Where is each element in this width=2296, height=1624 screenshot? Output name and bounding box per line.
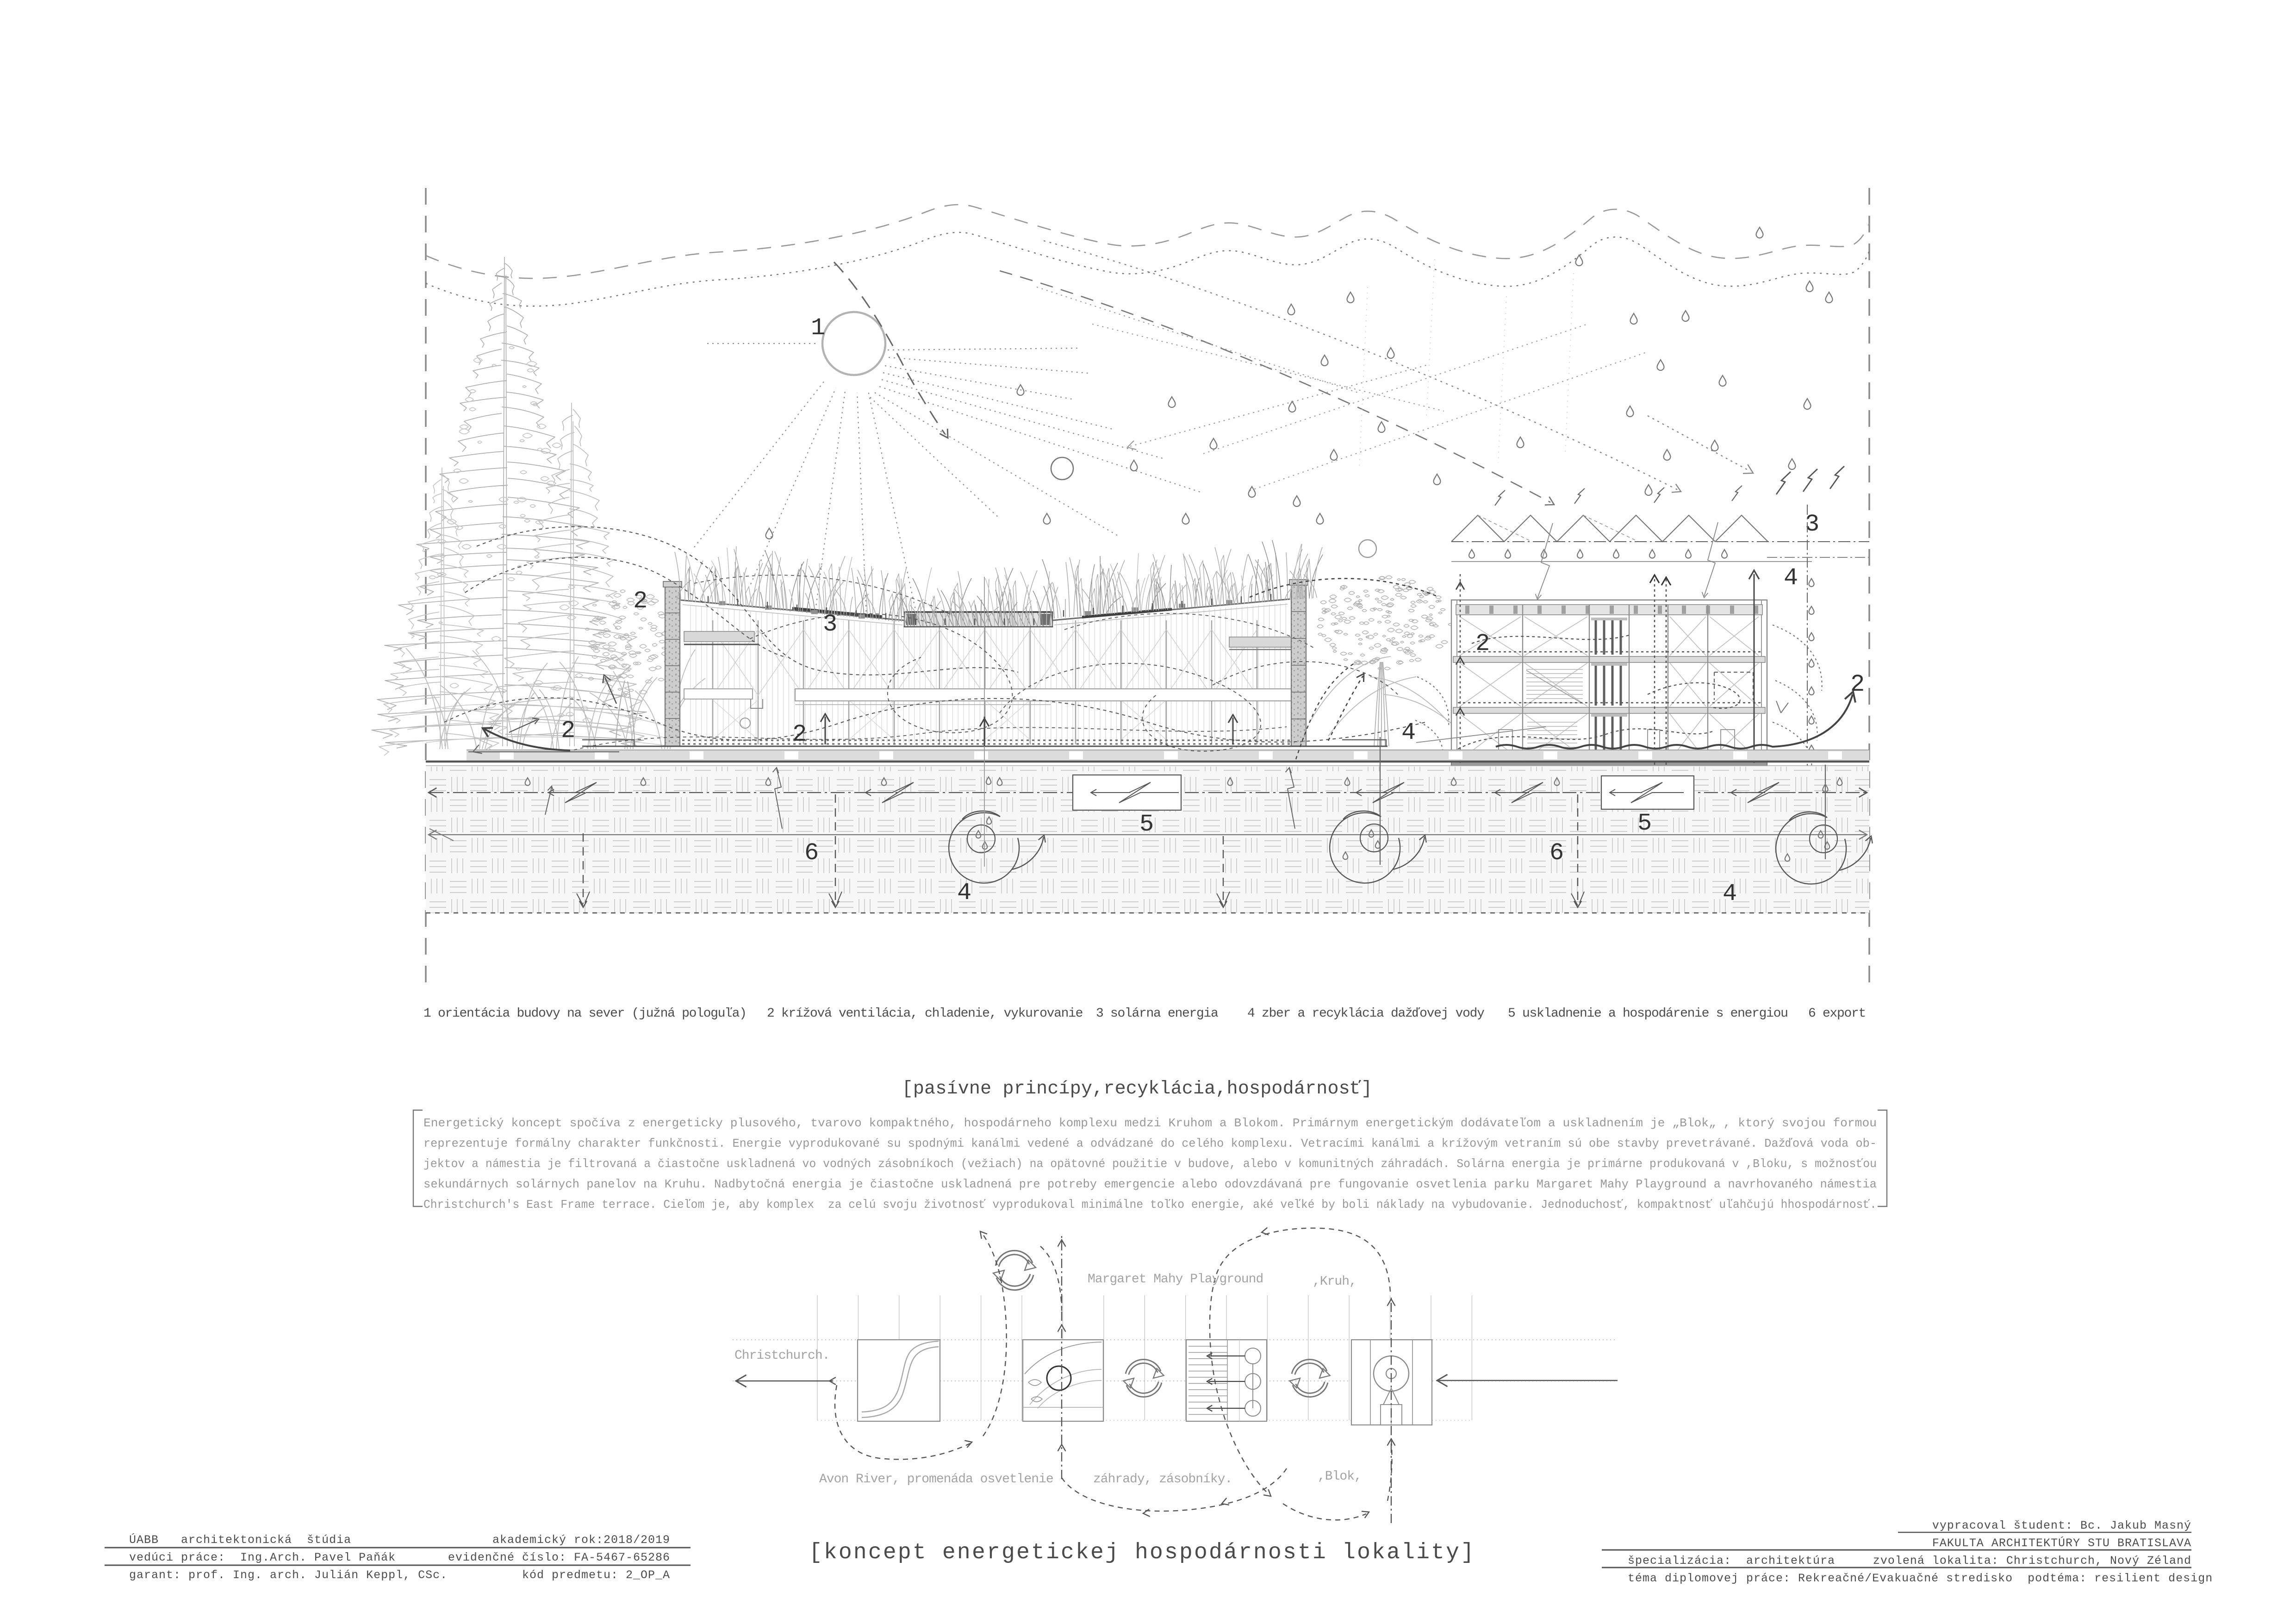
svg-text:2: 2 [792, 721, 807, 748]
svg-text:evidenčné číslo: FA-5467-65286: evidenčné číslo: FA-5467-65286 [448, 1551, 670, 1564]
svg-text:,Blok,: ,Blok, [1318, 1469, 1362, 1484]
svg-text:5: 5 [1637, 810, 1652, 837]
svg-text:6 export: 6 export [1808, 1006, 1866, 1021]
svg-text:5: 5 [1139, 811, 1154, 838]
svg-text:[pasívne princípy,recyklácia,h: [pasívne princípy,recyklácia,hospodárnos… [902, 1079, 1373, 1099]
svg-text:Avon River, promenáda osvetlen: Avon River, promenáda osvetlenie [819, 1472, 1053, 1487]
svg-text:4: 4 [1723, 880, 1737, 907]
svg-text:téma diplomovej práce: Rekreač: téma diplomovej práce: Rekreačné/Evakuač… [1628, 1572, 2213, 1585]
svg-text:2: 2 [633, 587, 647, 615]
svg-text:vypracoval študent: Bc. Jakub: vypracoval študent: Bc. Jakub Masný [1932, 1519, 2191, 1532]
svg-text:2: 2 [1850, 671, 1865, 698]
svg-text:2: 2 [561, 717, 575, 744]
svg-text:6: 6 [1549, 839, 1564, 867]
svg-text:akademický rok:2018/2019: akademický rok:2018/2019 [492, 1533, 670, 1547]
svg-text:špecializácia: architektúra: špecializácia: architektúra [1628, 1554, 1835, 1568]
svg-text:záhrady, zásobníky.: záhrady, zásobníky. [1093, 1472, 1232, 1487]
svg-text:,Kruh,: ,Kruh, [1313, 1274, 1356, 1289]
svg-text:Christchurch's East Frame terr: Christchurch's East Frame terrace. Cieľo… [423, 1198, 1877, 1212]
svg-text:1: 1 [811, 314, 825, 342]
svg-text:vedúci práce: Ing.Arch. Pavel: vedúci práce: Ing.Arch. Pavel Paňák [129, 1551, 396, 1564]
svg-text:4 zber a recyklácia dažďovej v: 4 zber a recyklácia dažďovej vody [1247, 1006, 1484, 1021]
svg-text:Energetický koncept spočíva z: Energetický koncept spočíva z energetick… [423, 1116, 1877, 1130]
svg-text:4: 4 [1401, 719, 1416, 746]
svg-text:jektov a námestia je filtrovan: jektov a námestia je filtrovaná a čiasto… [423, 1157, 1877, 1171]
svg-text:zvolená lokalita: Christchurch: zvolená lokalita: Christchurch, Nový Zél… [1873, 1554, 2191, 1568]
svg-text:6: 6 [804, 839, 819, 867]
svg-text:Margaret Mahy Playground: Margaret Mahy Playground [1088, 1272, 1263, 1287]
svg-text:reprezentuje formálny charakte: reprezentuje formálny charakter funkčnos… [423, 1137, 1877, 1150]
svg-text:4: 4 [1784, 564, 1798, 592]
svg-text:ÚABB architektonická štúdia: ÚABB architektonická štúdia [129, 1533, 351, 1547]
svg-text:2 krížová ventilácia, chladeni: 2 krížová ventilácia, chladenie, vykurov… [767, 1006, 1083, 1021]
svg-text:5 uskladnenie a hospodárenie s: 5 uskladnenie a hospodárenie s energiou [1508, 1006, 1788, 1021]
svg-text:3: 3 [823, 611, 837, 638]
svg-text:[koncept energetickej hospodár: [koncept energetickej hospodárnosti loka… [809, 1540, 1475, 1565]
svg-text:FAKULTA ARCHITEKTÚRY STU BRATI: FAKULTA ARCHITEKTÚRY STU BRATISLAVA [1932, 1536, 2191, 1550]
svg-text:sekundárnych solárnych panelov: sekundárnych solárnych panelov na Kruhu.… [423, 1177, 1877, 1191]
svg-text:4: 4 [957, 879, 971, 906]
svg-text:garant: prof. Ing. arch. Juliá: garant: prof. Ing. arch. Julián Keppl, C… [129, 1568, 448, 1582]
svg-text:3 solárna energia: 3 solárna energia [1096, 1006, 1218, 1021]
svg-text:1 orientácia budovy na sever (: 1 orientácia budovy na sever (južná polo… [423, 1006, 747, 1021]
svg-text:2: 2 [1475, 630, 1490, 657]
svg-text:kód predmetu: 2_OP_A: kód predmetu: 2_OP_A [522, 1568, 670, 1582]
svg-text:Christchurch.: Christchurch. [734, 1349, 829, 1363]
